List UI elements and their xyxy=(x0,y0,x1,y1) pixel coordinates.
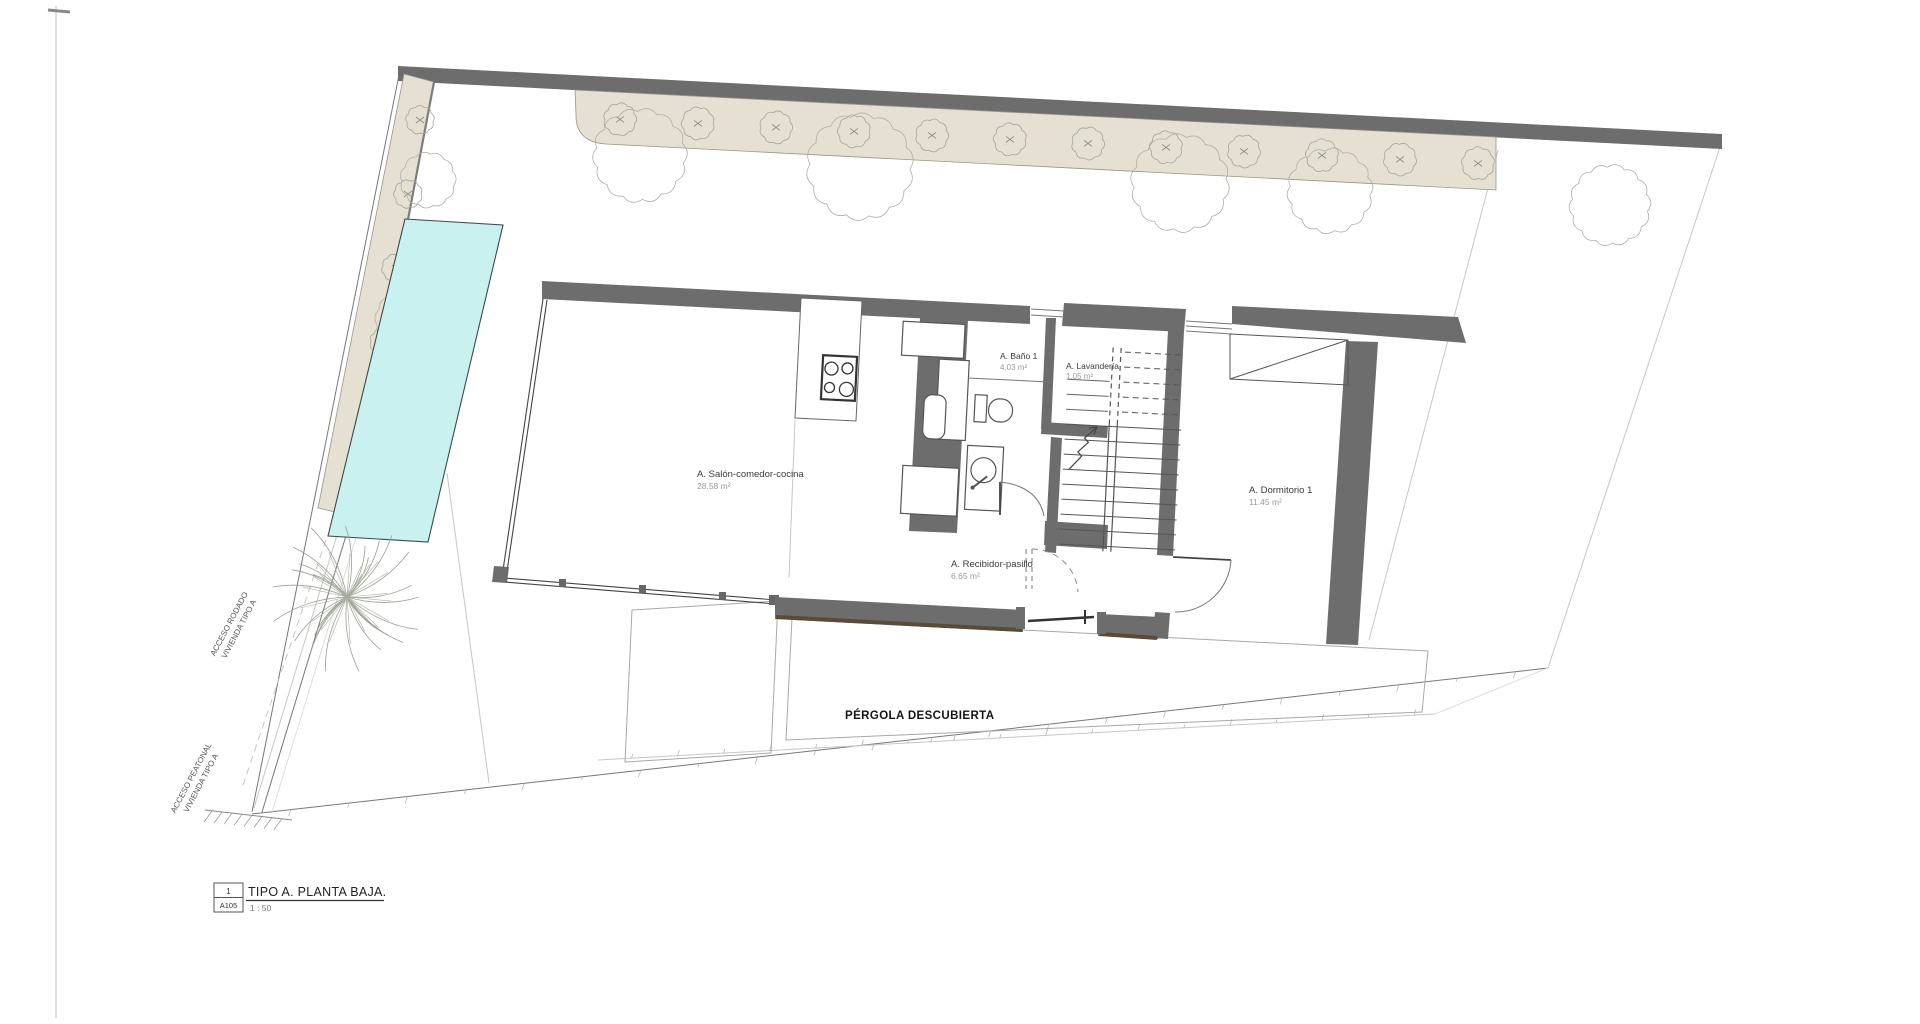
pergola-area: PÉRGOLA DESCUBIERTA xyxy=(625,601,1428,762)
wall-bath-east xyxy=(1041,318,1056,430)
shower-screen xyxy=(968,378,1050,382)
room-label-recibidor: A. Recibidor-pasillo xyxy=(951,559,1033,570)
corner-post xyxy=(492,566,509,583)
floor-plan-canvas: PÉRGOLA DESCUBIERTA xyxy=(0,0,1920,1024)
wall-north-laundry xyxy=(1062,303,1186,332)
grass-ticks xyxy=(289,672,1516,817)
detail-number: 1 xyxy=(226,887,231,896)
garden-path-edge xyxy=(447,473,489,783)
walls xyxy=(542,281,1466,645)
bathroom-door xyxy=(1000,482,1044,516)
mullion xyxy=(639,585,646,593)
living-glazing xyxy=(492,299,779,605)
room-area-bano: 4.03 m² xyxy=(1000,363,1027,372)
bathroom xyxy=(964,378,1050,516)
sheet-margin xyxy=(48,6,70,1018)
driveway-centerline xyxy=(242,540,326,788)
hall-door-dashed xyxy=(1026,549,1078,592)
acceso-rodado-label: ACCESO RODADO VIVIENDA TIPO A xyxy=(209,590,260,662)
view-scale: 1 : 50 xyxy=(250,903,272,913)
wall-stair-east xyxy=(1157,330,1184,556)
view-title: TIPO A. PLANTA BAJA. xyxy=(248,885,386,899)
wall-east-bedroom xyxy=(1326,341,1378,645)
plot-edge-south xyxy=(252,668,1548,814)
title-block: 1 A105 TIPO A. PLANTA BAJA. 1 : 50 xyxy=(214,883,386,913)
mullion xyxy=(719,592,726,600)
building xyxy=(492,281,1466,645)
kitchen-island xyxy=(795,298,862,421)
closet xyxy=(1230,334,1348,385)
acceso-peatonal-label: ACCESO PEATONAL VIVIENDA TIPO A xyxy=(169,741,224,820)
terrace-edge-east xyxy=(1369,150,1498,640)
tall-cabinets xyxy=(893,321,971,516)
bathroom-fixtures xyxy=(964,394,1013,511)
room-label-bano: A. Baño 1 xyxy=(1000,351,1038,361)
floor-plan-sheet: PÉRGOLA DESCUBIERTA xyxy=(0,0,1920,1024)
room-area-lavanderia: 1.05 m² xyxy=(1066,372,1093,381)
toilet-bowl-icon xyxy=(988,398,1013,422)
fence-line-1 xyxy=(262,516,352,812)
wall-north-main xyxy=(542,281,1030,324)
room-label-lavanderia: A. Lavandería xyxy=(1066,361,1119,371)
plot-edge-east xyxy=(1548,141,1722,668)
kitchen xyxy=(789,298,971,578)
room-label-dormitorio: A. Dormitorio 1 xyxy=(1249,485,1312,496)
toilet-icon xyxy=(974,395,987,423)
pergola-label: PÉRGOLA DESCUBIERTA xyxy=(845,709,994,722)
room-area-dormitorio: 11.45 m² xyxy=(1249,497,1282,507)
room-area-salon: 28.58 m² xyxy=(697,481,731,491)
bedroom-door xyxy=(1173,557,1231,612)
room-label-salon: A. Salón-comedor-cocina xyxy=(697,469,804,480)
ground-hatch xyxy=(204,810,292,830)
wall-north-bedroom xyxy=(1232,306,1466,343)
mullion xyxy=(559,579,566,587)
room-area-recibidor: 6.65 m² xyxy=(951,571,980,581)
sheet-number: A105 xyxy=(220,901,238,910)
terrace-slab-west xyxy=(625,601,778,762)
room-labels: A. Salón-comedor-cocina 28.58 m² A. Baño… xyxy=(697,351,1312,581)
